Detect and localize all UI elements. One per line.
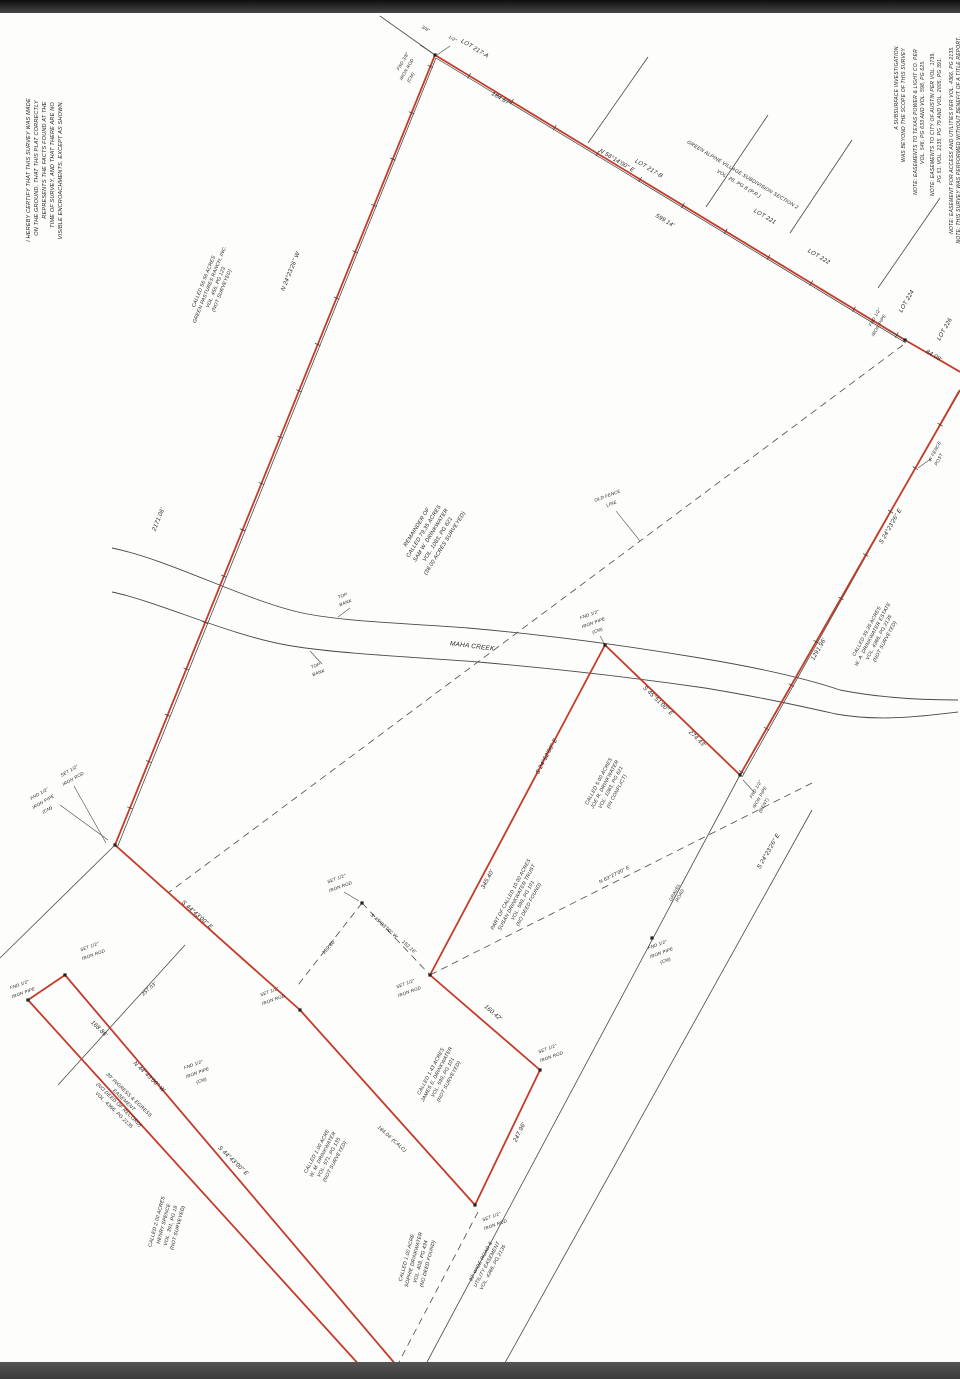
plat-label: OLD FENCE xyxy=(594,488,622,502)
note-text: NOTE: EASEMENTS TO CITY OF AUSTIN PER VO… xyxy=(930,52,936,196)
corner-monument xyxy=(650,936,653,939)
certification-text: I HEREBY CERTIFY THAT THIS SURVEY WAS MA… xyxy=(26,98,32,242)
creek-bank-line xyxy=(112,592,958,718)
plat-label: (CM) xyxy=(196,1076,208,1084)
plat-label: 247.96' xyxy=(512,1121,527,1144)
plat-label: LOT 224 xyxy=(898,289,916,314)
plat-label: N 24°23'26" W xyxy=(280,250,302,292)
corner-monument xyxy=(428,973,431,976)
leader-line xyxy=(616,511,640,541)
corner-monument xyxy=(538,1068,541,1071)
corner-monument xyxy=(26,998,29,1001)
leader-line xyxy=(74,786,106,843)
plat-label: S 24°52'00" E xyxy=(535,737,559,776)
dashed-tie-line xyxy=(168,345,903,893)
corner-monument xyxy=(113,843,116,846)
adjoiner-line xyxy=(58,945,185,1085)
note-text: NOTE: EASEMENT FOR ACCESS AND UTILITIES … xyxy=(949,46,955,234)
boundary-red-line xyxy=(740,390,960,775)
adjoiner-line xyxy=(496,810,812,1379)
plat-label: S 44°43'00" E xyxy=(180,900,214,932)
note-text: NOTE: THIS SURVEY WAS PERFORMED WITHOUT … xyxy=(956,37,960,244)
plat-label: TOP xyxy=(310,662,321,670)
adjoiner-line xyxy=(588,57,648,143)
scanned-survey-plat-page: I HEREBY CERTIFY THAT THIS SURVEY WAS MA… xyxy=(0,0,960,1379)
creek-bank-line xyxy=(112,548,958,700)
boundary-red-line xyxy=(28,1000,372,1379)
corner-monument xyxy=(903,338,906,341)
corner-monument xyxy=(360,901,363,904)
leader-line xyxy=(888,330,902,338)
plat-label: 3/8" xyxy=(421,24,431,33)
note-text: A SUBSURFACE INVESTIGATION xyxy=(894,46,900,130)
plat-label: (CM) xyxy=(592,626,604,634)
plat-label: MAHA CREEK xyxy=(450,640,496,652)
plat-label: LOT 226 xyxy=(936,317,954,342)
note-text: PG 51, VOL. 2135, PG 79 AND VOL. 2005, P… xyxy=(937,57,943,182)
plat-label: LOT 217-A xyxy=(460,39,490,60)
leader-line xyxy=(338,608,350,617)
plat-label: 345.40' xyxy=(481,868,496,890)
survey-plat-drawing: I HEREBY CERTIFY THAT THIS SURVEY WAS MA… xyxy=(0,0,960,1379)
plat-label: 1291.96' xyxy=(810,637,828,662)
leader-line xyxy=(60,805,108,840)
adjoiner-line xyxy=(418,775,740,1379)
plat-label: 160.42' xyxy=(483,1004,503,1023)
plat-label: 2171.06' xyxy=(151,507,166,533)
scan-bottom-bar xyxy=(0,1362,960,1379)
adjoiner-line xyxy=(790,140,852,233)
plat-label: BANK xyxy=(311,668,326,677)
plat-label: LOT 222 xyxy=(806,248,831,266)
plat-label: S 24°23'26" E xyxy=(757,832,782,870)
plat-label: N 44°43'00" W xyxy=(132,1061,167,1095)
plat-label: (CM) xyxy=(41,805,53,815)
plat-label: 159.60' xyxy=(321,938,338,956)
certification-text: TIME OF SURVEY, AND THAT THERE ARE NO xyxy=(50,102,56,228)
plat-label: (CM) xyxy=(660,956,672,964)
note-text: WAS BEYOND THE SCOPE OF THIS SURVEY xyxy=(901,48,907,162)
leader-line xyxy=(600,636,604,643)
leader-line xyxy=(420,45,432,53)
plat-label: LOT 221 xyxy=(752,208,776,226)
adjoiner-line xyxy=(878,198,940,288)
note-text: NOTE: EASEMENTS TO TEXAS POWER & LIGHT C… xyxy=(913,49,919,195)
certification-text: REPRESENTS THE FACTS FOUND AT THE xyxy=(42,101,48,218)
corner-monument xyxy=(603,643,606,646)
corner-monument xyxy=(433,53,436,56)
plat-label: S 45°03'00" W xyxy=(369,912,400,940)
note-text: VOL. 546, PG 633 AND VOL. 598, PG 625. xyxy=(920,60,926,164)
plat-label: GREEN ALPINE VILLAGE SUBDIVISION SECTION… xyxy=(686,139,800,210)
plat-label: BANK xyxy=(338,598,353,607)
leader-line xyxy=(437,46,450,55)
plat-label: 184.67' xyxy=(490,91,512,107)
boundary-shadow-line xyxy=(117,58,436,848)
plat-label: 184.04' (CALC) xyxy=(376,1125,408,1154)
plat-label: TOP xyxy=(337,592,348,600)
plat-label: 599.14' xyxy=(654,213,676,229)
corner-monument xyxy=(738,773,741,776)
plat-label: S 45°51'00" E xyxy=(641,685,674,717)
plat-label: 1/2" xyxy=(448,34,458,43)
boundary-red-line xyxy=(475,1070,540,1205)
plat-label: LINE xyxy=(606,499,619,508)
corner-monument xyxy=(63,973,66,976)
boundary-red-line xyxy=(605,645,740,775)
plat-label: LOT 217-B xyxy=(634,159,664,180)
dashed-tie-line xyxy=(390,1212,478,1379)
leader-line xyxy=(344,892,359,901)
boundary-red-line xyxy=(115,55,435,845)
plat-label: 257.03' xyxy=(140,981,159,999)
plat-label: 152.16' xyxy=(400,939,418,956)
plat-label: N 56°14'00" E xyxy=(598,148,636,174)
plat-label: 84.08' xyxy=(925,349,944,363)
certification-text: VISIBLE ENCROACHMENTS, EXCEPT AS SHOWN. xyxy=(58,101,64,240)
corner-monument xyxy=(298,1008,301,1011)
corner-monument xyxy=(473,1203,476,1206)
certification-text: ON THE GROUND, THAT THIS PLAT CORRECTLY xyxy=(34,100,40,236)
boundary-red-line xyxy=(65,975,408,1379)
